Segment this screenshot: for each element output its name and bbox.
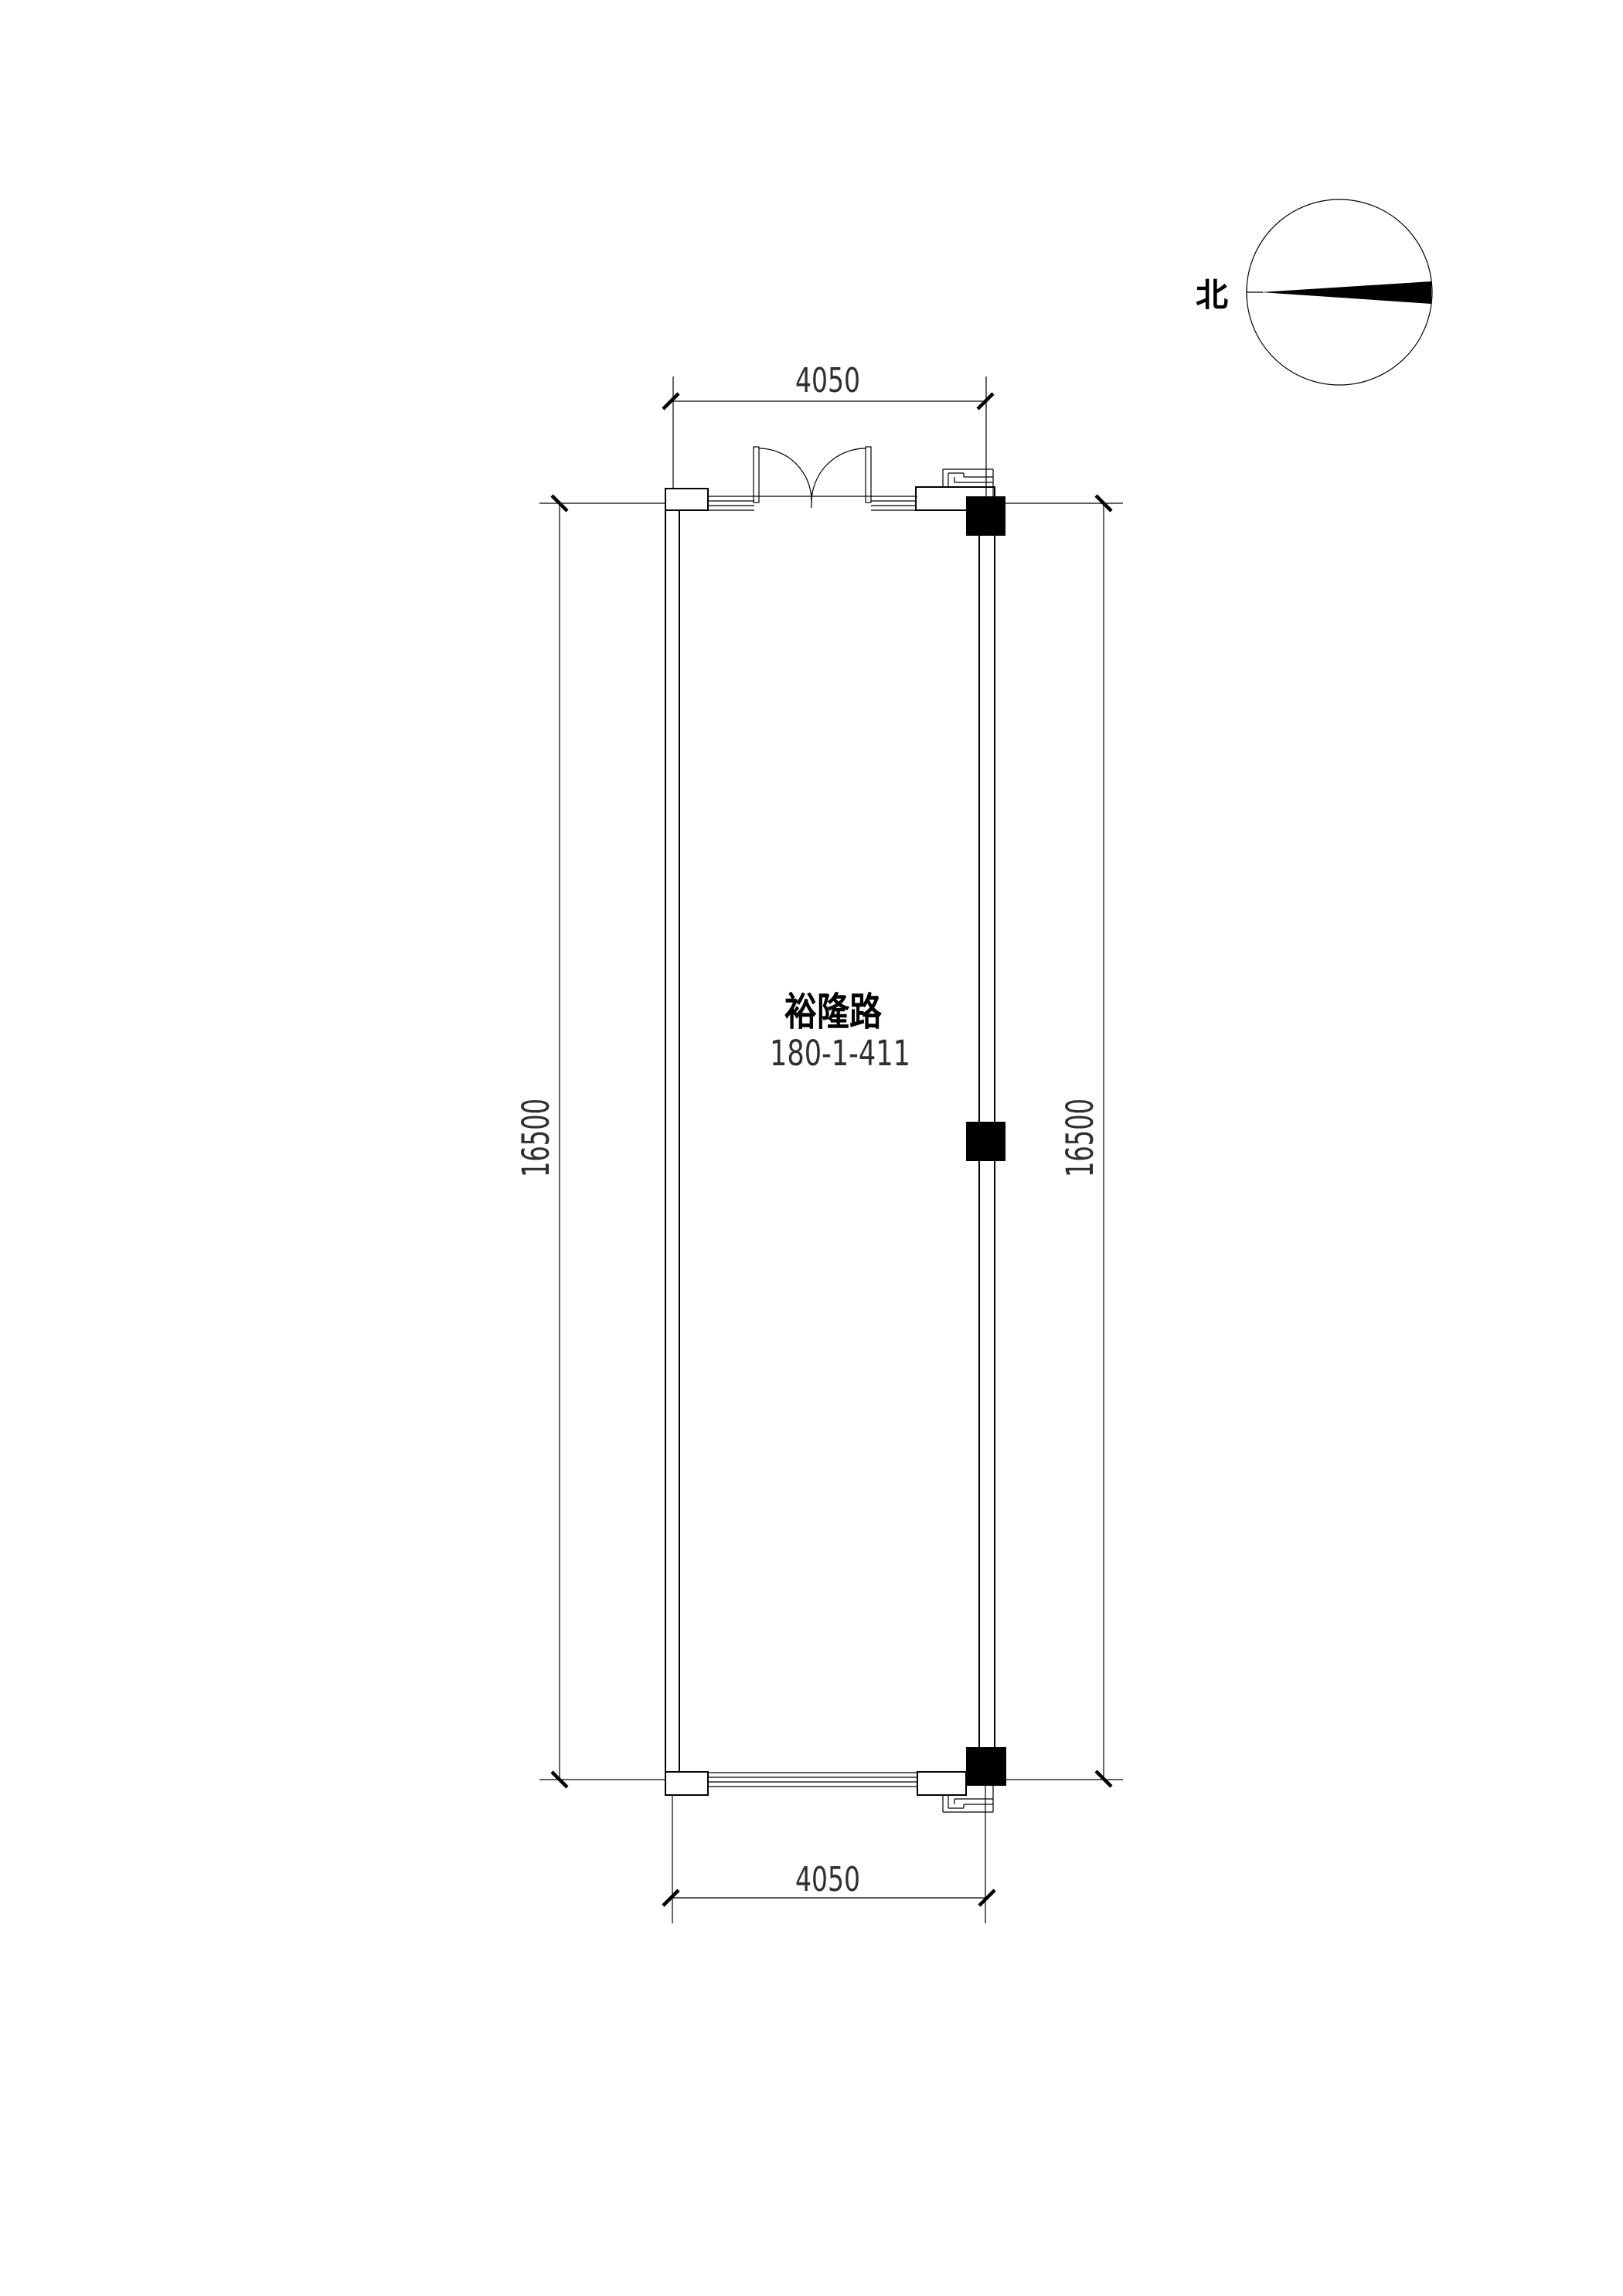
axis-centerlines — [539, 503, 1123, 1780]
right-dimension: 16500 — [1059, 496, 1111, 1787]
column-mid-right — [966, 1122, 1005, 1161]
left-dimension: 16500 — [515, 496, 567, 1787]
bottom-right-wall-block — [917, 1772, 966, 1795]
room-street-label: 裕隆路 — [784, 990, 883, 1034]
bottom-dimension-value: 4050 — [795, 1860, 860, 1899]
column-top-right — [966, 496, 1005, 536]
left-wall — [665, 510, 679, 1772]
top-left-wall-block — [665, 489, 708, 510]
north-label: 北 — [1196, 276, 1228, 314]
top-dimension: 4050 — [663, 361, 993, 496]
room-number-label: 180-1-411 — [770, 1033, 910, 1074]
left-dimension-value: 16500 — [515, 1099, 558, 1177]
column-bottom-right — [966, 1747, 1006, 1786]
floor-plan-drawing: 北 — [0, 0, 1623, 2296]
door-jamb-left — [754, 447, 759, 502]
bottom-wall — [665, 1772, 966, 1795]
door-leaf-arc-right — [811, 448, 866, 502]
room-label: 裕隆路 180-1-411 — [770, 990, 910, 1074]
door-jamb-right — [866, 447, 871, 502]
bottom-window-band — [708, 1773, 917, 1787]
drawing-sheet: 北 — [0, 0, 1623, 2296]
north-needle-icon — [1261, 281, 1431, 304]
right-dimension-value: 16500 — [1059, 1099, 1102, 1177]
top-window-right — [871, 501, 916, 510]
top-wall — [665, 487, 995, 510]
bottom-dimension: 4050 — [663, 1786, 995, 1923]
north-compass: 北 — [1196, 199, 1432, 385]
bottom-left-wall-block — [665, 1772, 708, 1795]
door-leaf-arc-left — [759, 448, 811, 501]
top-dimension-value: 4050 — [795, 361, 860, 400]
top-window-left — [708, 501, 754, 510]
entry-double-door — [754, 447, 871, 508]
